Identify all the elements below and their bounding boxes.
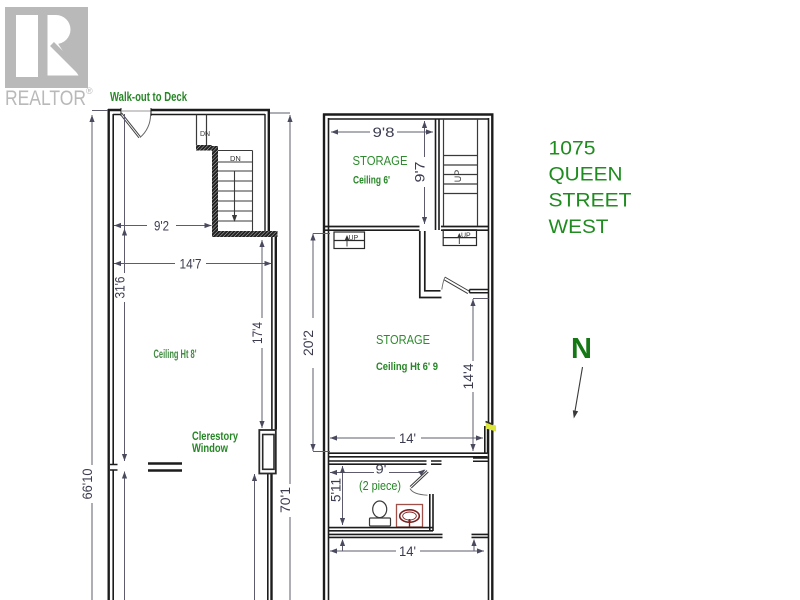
svg-text:66'10: 66'10 — [79, 468, 95, 499]
svg-text:31'6: 31'6 — [112, 276, 128, 298]
svg-text:Ceiling Ht 6' 9: Ceiling Ht 6' 9 — [376, 361, 438, 373]
svg-text:9'7: 9'7 — [412, 161, 428, 182]
svg-text:14'4: 14'4 — [460, 363, 476, 389]
svg-text:N: N — [571, 333, 592, 365]
svg-text:DN: DN — [200, 131, 210, 138]
svg-text:UP: UP — [453, 170, 463, 183]
svg-text:UP: UP — [461, 232, 471, 239]
svg-text:DN: DN — [230, 154, 241, 163]
svg-text:WEST: WEST — [549, 216, 609, 238]
svg-text:14'7: 14'7 — [180, 256, 202, 272]
svg-text:14': 14' — [399, 430, 416, 446]
svg-text:Ceiling 6': Ceiling 6' — [353, 175, 390, 187]
svg-text:9'2: 9'2 — [154, 218, 169, 234]
svg-text:REALTOR: REALTOR — [5, 87, 86, 110]
svg-text:20'2: 20'2 — [300, 330, 316, 356]
svg-text:Ceiling Ht 8': Ceiling Ht 8' — [154, 349, 197, 361]
svg-text:5'11: 5'11 — [328, 478, 344, 502]
svg-text:70'1: 70'1 — [277, 487, 293, 513]
svg-text:®: ® — [86, 86, 93, 96]
svg-text:(2 piece): (2 piece) — [359, 478, 401, 493]
svg-text:QUEEN: QUEEN — [549, 164, 623, 186]
svg-text:UP: UP — [349, 235, 359, 242]
svg-text:STREET: STREET — [549, 190, 632, 212]
svg-text:STORAGE: STORAGE — [353, 153, 408, 168]
svg-text:STORAGE: STORAGE — [376, 332, 430, 347]
svg-text:9': 9' — [376, 463, 387, 477]
svg-text:1075: 1075 — [549, 138, 596, 160]
svg-text:14': 14' — [399, 543, 416, 559]
svg-text:17'4: 17'4 — [249, 322, 265, 344]
svg-text:Window: Window — [192, 441, 229, 455]
svg-text:Walk-out to Deck: Walk-out to Deck — [110, 89, 188, 104]
svg-text:9'8: 9'8 — [373, 124, 395, 140]
